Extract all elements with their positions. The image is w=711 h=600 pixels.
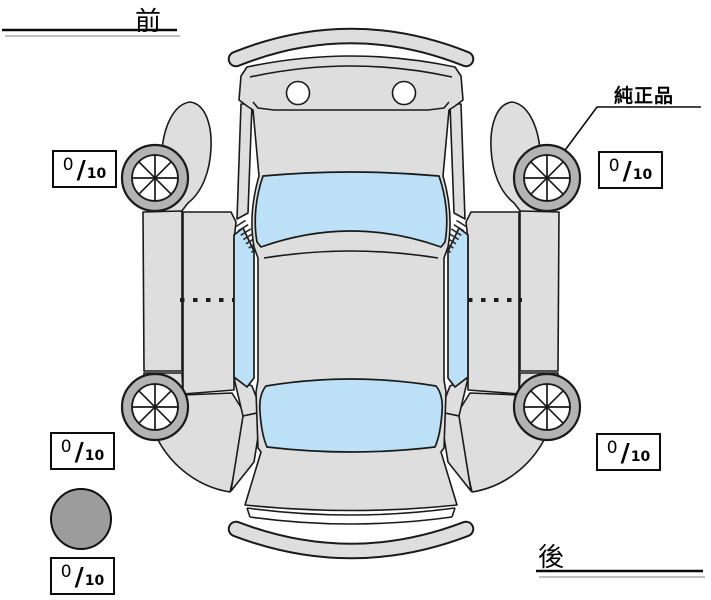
- tire-score-rear-left: 0/10: [50, 432, 115, 470]
- wheel-front-left: [122, 145, 188, 211]
- wheel-rear-right: [514, 374, 580, 440]
- right-a-pillar: [450, 104, 465, 219]
- right-rocker-panel: [520, 211, 559, 371]
- wheel-front-right: [514, 145, 580, 211]
- score-value: 0: [61, 439, 72, 456]
- score-separator: /: [75, 439, 84, 464]
- rear-window: [260, 379, 443, 452]
- rear-bumper: [236, 529, 466, 551]
- score-separator: /: [621, 440, 630, 465]
- left-a-pillar: [237, 104, 252, 219]
- score-value: 0: [607, 440, 618, 457]
- front-label: 前: [135, 1, 161, 38]
- tire-score-spare: 0/10: [50, 557, 115, 595]
- score-value: 0: [61, 564, 72, 581]
- score-value: 0: [609, 158, 620, 175]
- score-value: 0: [63, 157, 74, 174]
- left-rocker-panel: [143, 211, 182, 371]
- genuine-part-label: 純正品: [614, 81, 674, 108]
- score-max: 10: [85, 574, 104, 588]
- right-side-window: [448, 228, 468, 387]
- left-side-window: [234, 228, 254, 387]
- tire-score-front-left: 0/10: [52, 150, 117, 188]
- score-separator: /: [77, 157, 86, 182]
- score-max: 10: [87, 167, 106, 181]
- tire-score-front-right: 0/10: [598, 151, 663, 189]
- tire-score-rear-right: 0/10: [596, 433, 661, 471]
- score-max: 10: [85, 449, 104, 463]
- right-door-panel: [466, 212, 519, 394]
- rear-label: 後: [538, 537, 564, 574]
- left-door-panel: [183, 212, 236, 394]
- right-headlight: [393, 82, 416, 105]
- genuine-part-callout-line: [560, 107, 701, 157]
- score-separator: /: [75, 564, 84, 589]
- score-max: 10: [633, 168, 652, 182]
- score-separator: /: [623, 158, 632, 183]
- wheel-rear-left: [122, 374, 188, 440]
- car-condition-diagram: 0/10 0/10 0/10 0/10 0/10 前 後 純正品: [0, 0, 711, 600]
- left-headlight: [287, 82, 310, 105]
- score-max: 10: [631, 450, 650, 464]
- spare-tire: [50, 488, 112, 550]
